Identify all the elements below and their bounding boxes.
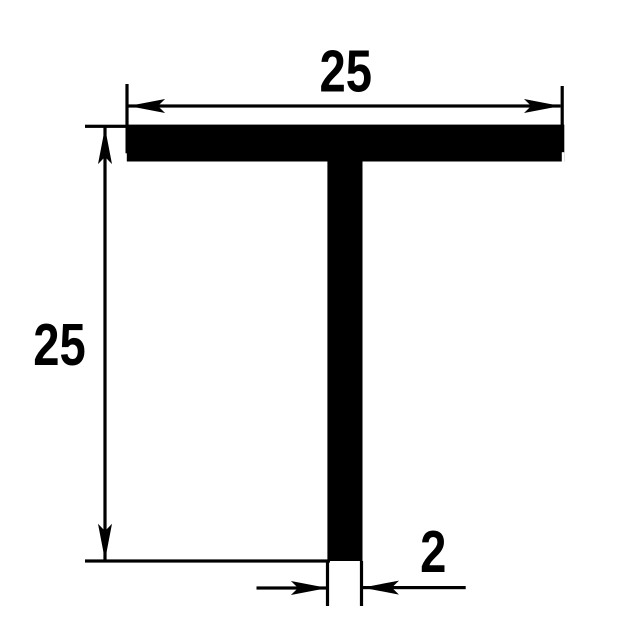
svg-text:25: 25 (33, 313, 85, 378)
svg-text:2: 2 (420, 520, 446, 585)
svg-text:25: 25 (320, 40, 372, 105)
